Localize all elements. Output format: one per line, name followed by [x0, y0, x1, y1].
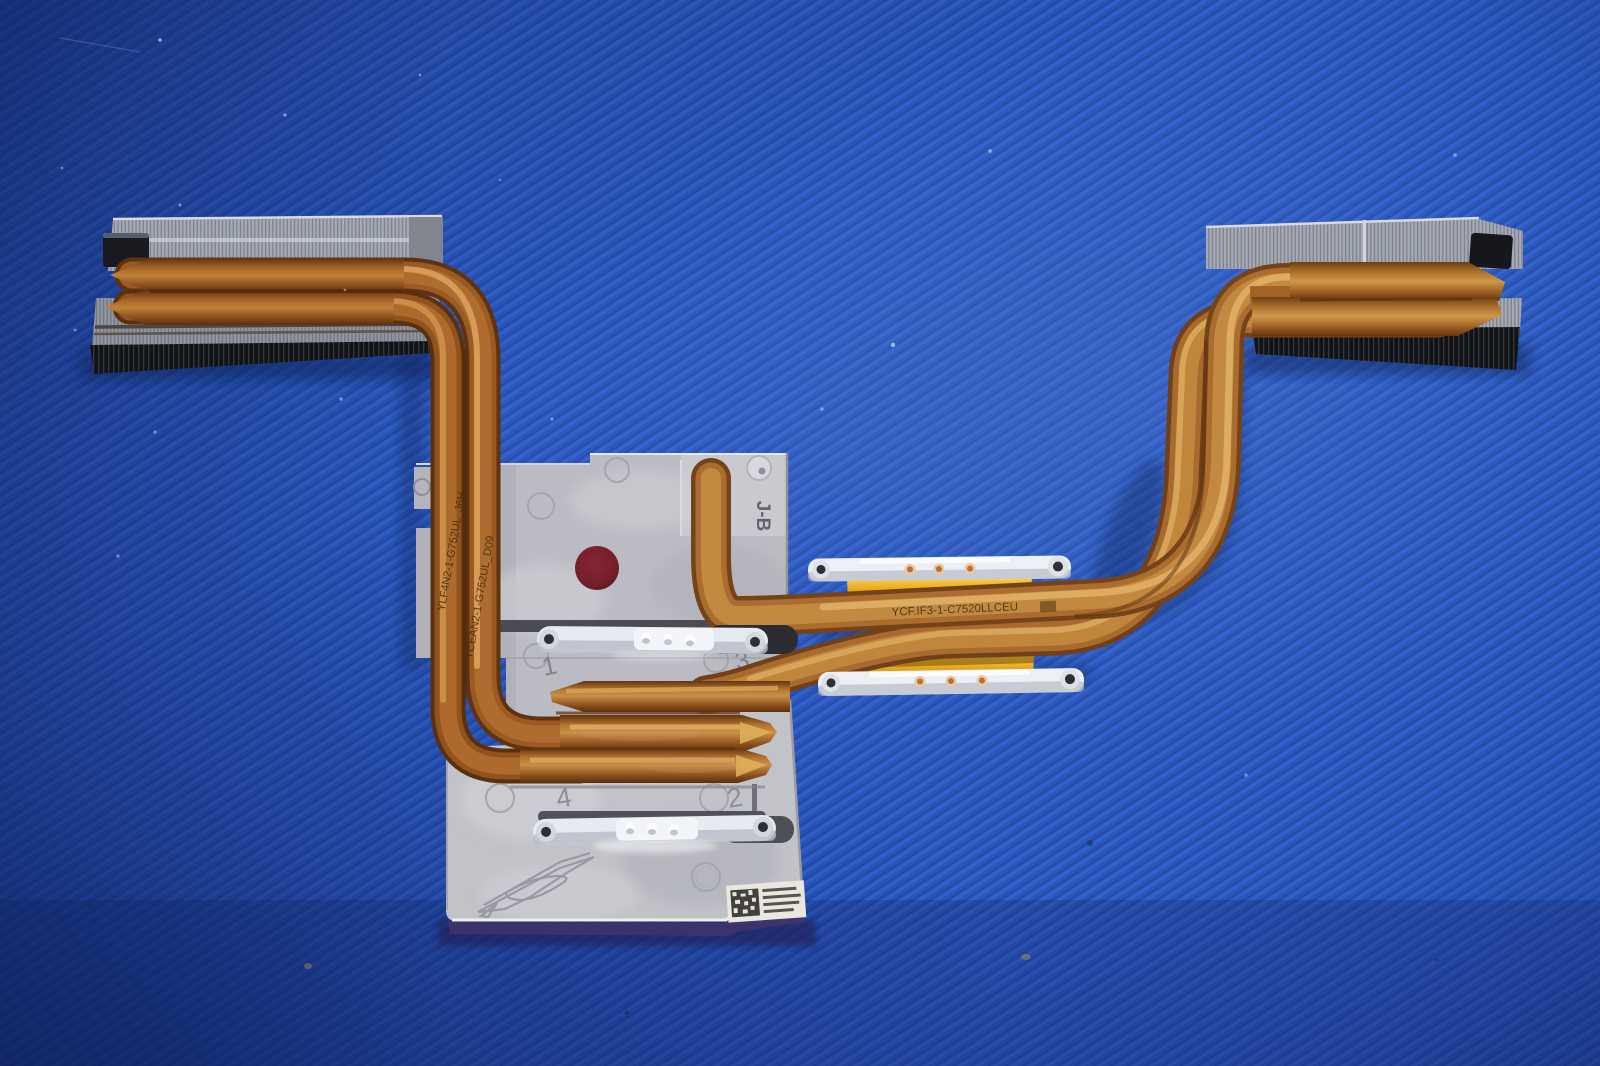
svg-text:J-B: J-B [752, 501, 773, 532]
